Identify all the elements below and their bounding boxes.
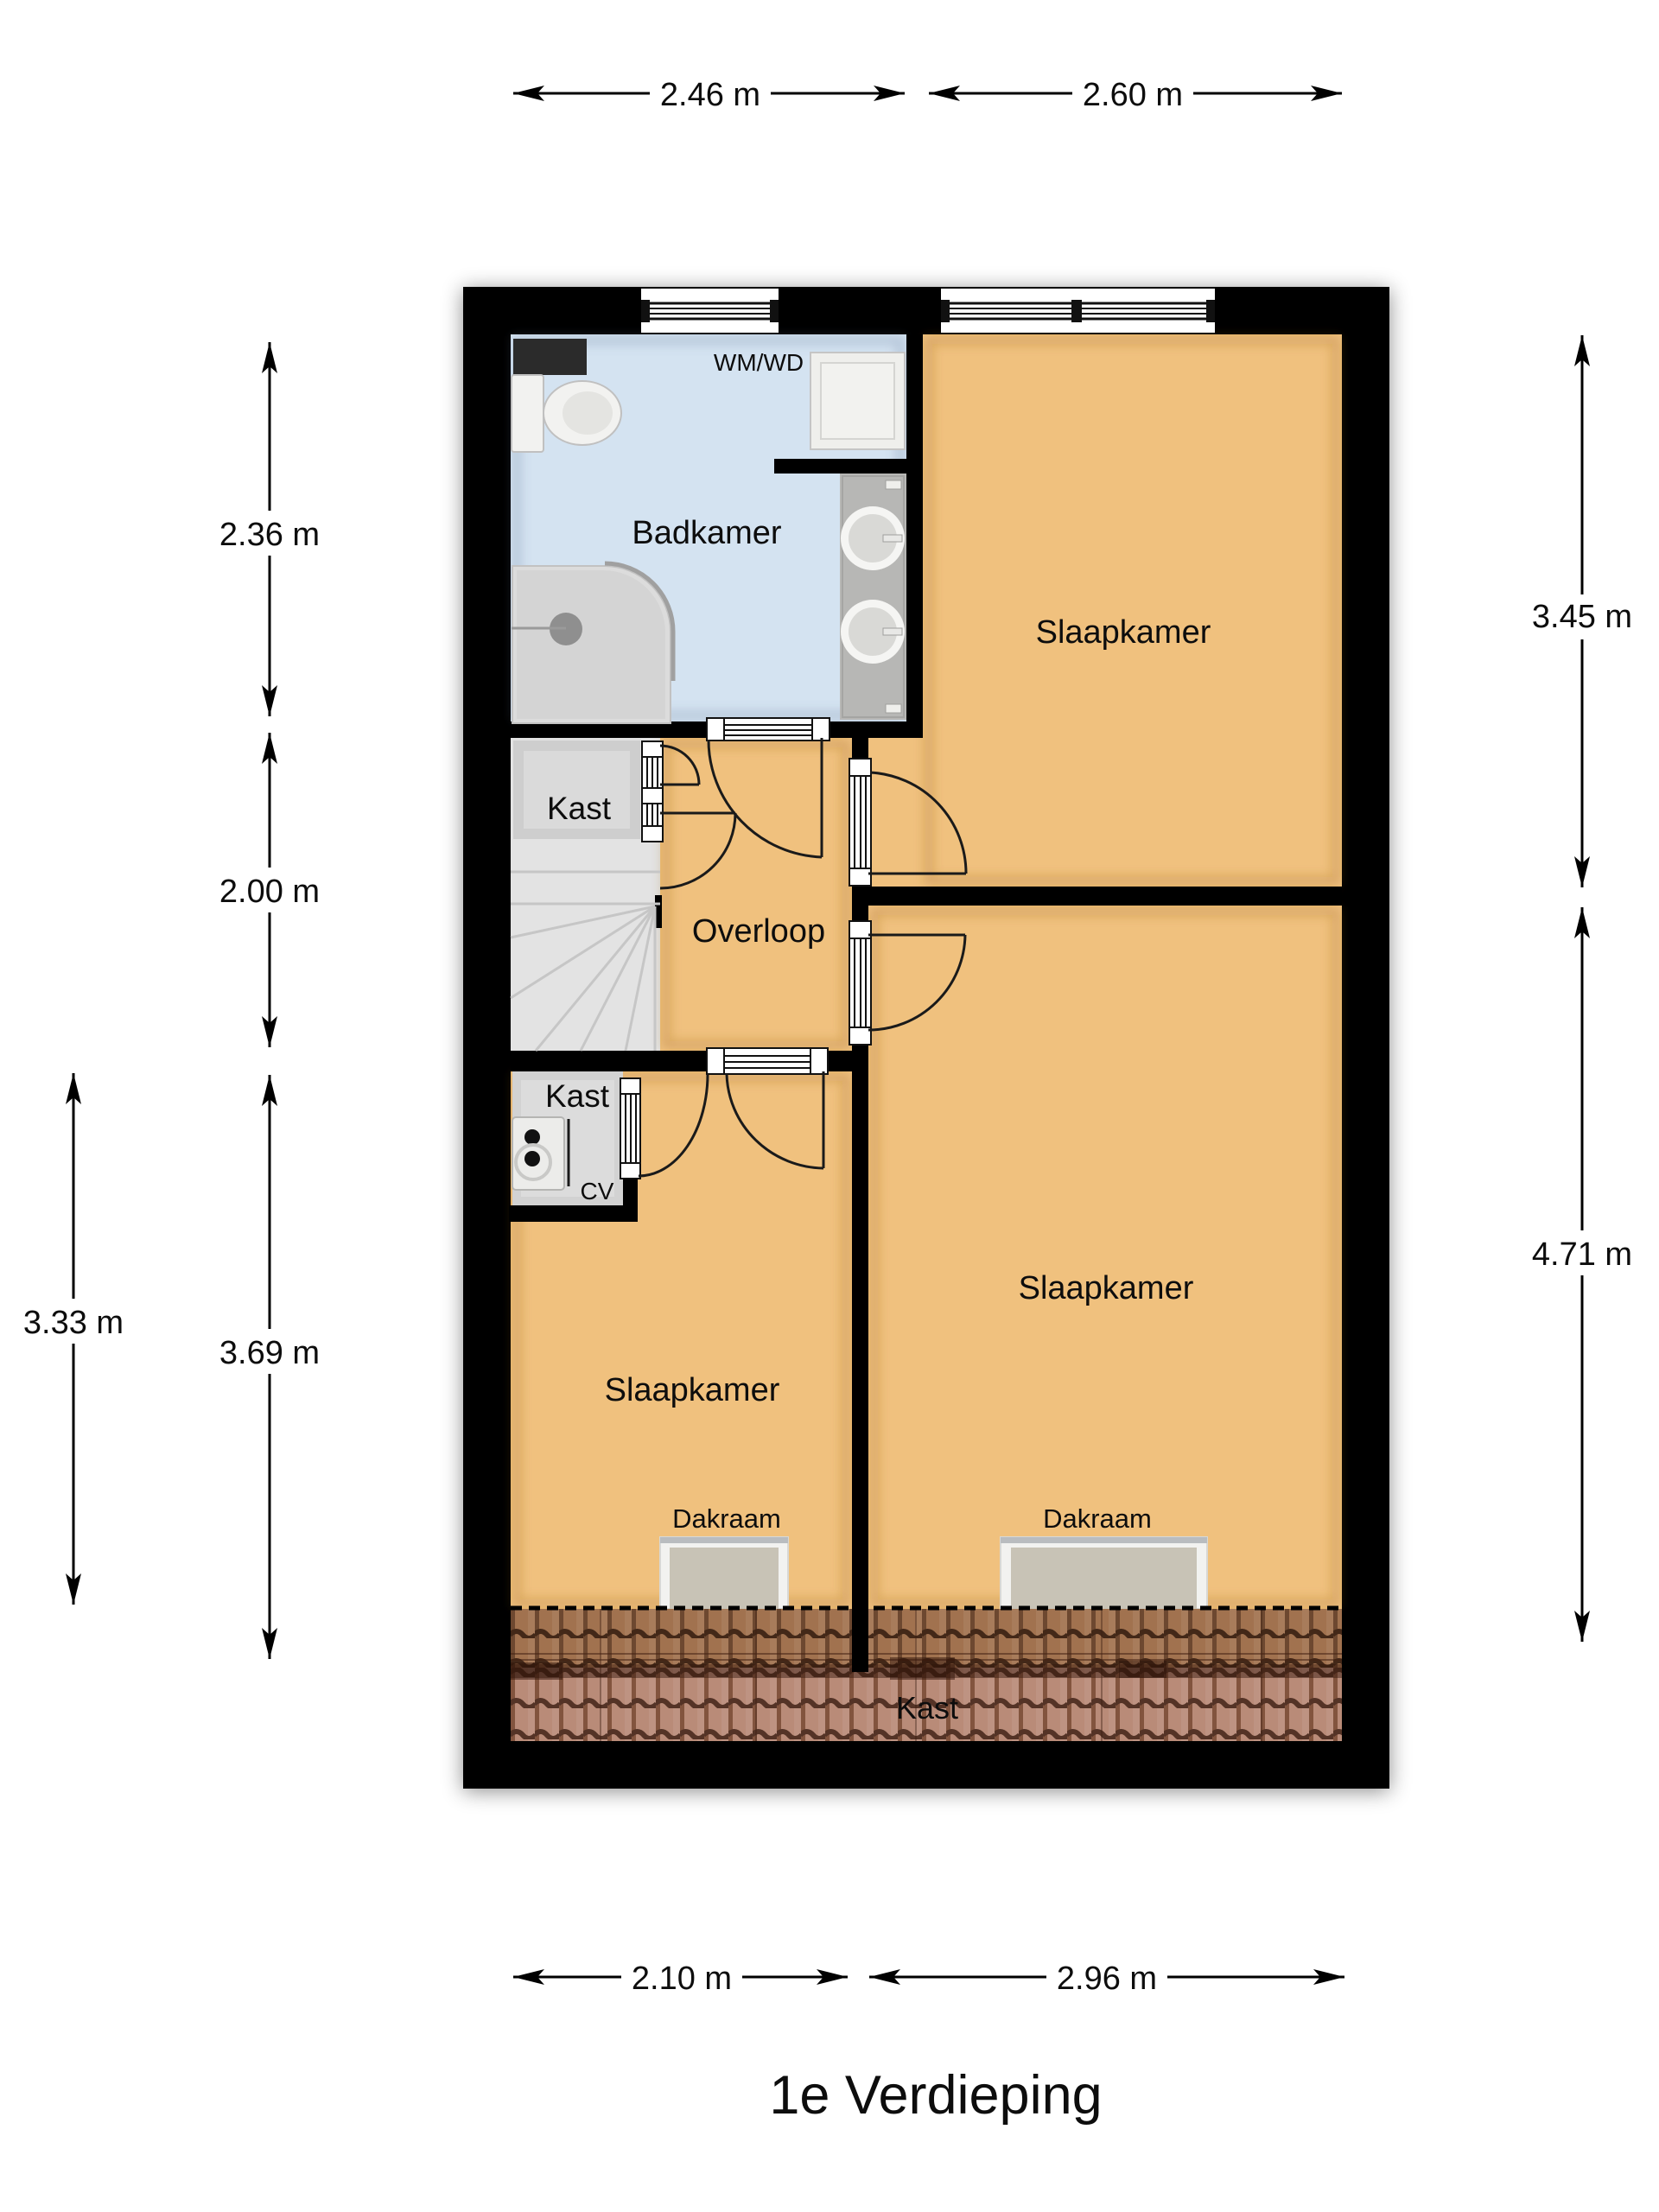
svg-text:Kast: Kast	[896, 1690, 958, 1726]
svg-text:1e Verdieping: 1e Verdieping	[769, 2065, 1102, 2126]
svg-text:Badkamer: Badkamer	[632, 515, 782, 551]
svg-text:2.96 m: 2.96 m	[1057, 1961, 1157, 1997]
svg-text:2.60 m: 2.60 m	[1083, 77, 1183, 113]
svg-text:3.45 m: 3.45 m	[1532, 599, 1632, 635]
svg-text:Kast: Kast	[547, 791, 612, 826]
svg-text:Slaapkamer: Slaapkamer	[605, 1372, 780, 1408]
svg-text:2.00 m: 2.00 m	[219, 874, 320, 910]
svg-text:2.36 m: 2.36 m	[219, 517, 320, 553]
svg-text:2.10 m: 2.10 m	[632, 1961, 732, 1997]
svg-text:Dakraam: Dakraam	[672, 1503, 781, 1534]
svg-text:3.33 m: 3.33 m	[23, 1305, 124, 1341]
svg-text:3.69 m: 3.69 m	[219, 1335, 320, 1371]
svg-text:Dakraam: Dakraam	[1043, 1503, 1152, 1534]
svg-text:2.46 m: 2.46 m	[660, 77, 760, 113]
svg-text:Slaapkamer: Slaapkamer	[1019, 1270, 1194, 1306]
svg-text:WM/WD: WM/WD	[714, 349, 804, 376]
svg-text:Kast: Kast	[545, 1078, 610, 1114]
svg-text:Slaapkamer: Slaapkamer	[1036, 614, 1211, 651]
svg-text:Overloop: Overloop	[692, 913, 825, 950]
svg-text:CV: CV	[581, 1178, 614, 1205]
svg-text:4.71 m: 4.71 m	[1532, 1236, 1632, 1273]
